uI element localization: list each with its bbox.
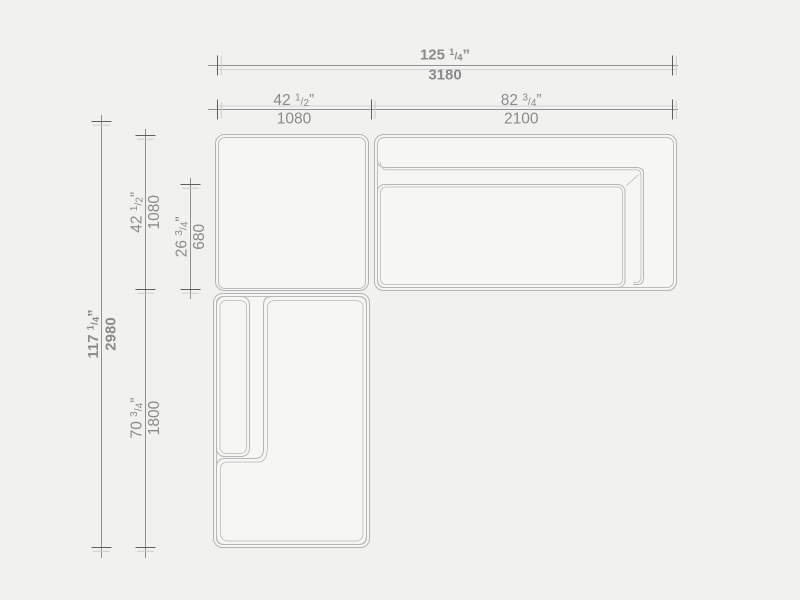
svg-text:26 3/4”: 26 3/4” xyxy=(173,216,190,257)
svg-text:70 3/4”: 70 3/4” xyxy=(129,398,146,439)
svg-text:125 1/4”: 125 1/4” xyxy=(420,47,470,64)
svg-text:42 1/2”: 42 1/2” xyxy=(273,92,314,109)
svg-text:2980: 2980 xyxy=(102,317,119,350)
svg-text:3180: 3180 xyxy=(428,67,461,84)
svg-text:1080: 1080 xyxy=(146,195,163,230)
svg-text:82 3/4”: 82 3/4” xyxy=(501,92,542,109)
svg-text:2100: 2100 xyxy=(504,111,539,128)
svg-text:42 1/2”: 42 1/2” xyxy=(129,192,146,233)
svg-text:1800: 1800 xyxy=(146,400,163,435)
svg-text:680: 680 xyxy=(191,223,208,249)
svg-text:1080: 1080 xyxy=(277,111,312,128)
svg-text:117 1/4”: 117 1/4” xyxy=(85,309,102,358)
